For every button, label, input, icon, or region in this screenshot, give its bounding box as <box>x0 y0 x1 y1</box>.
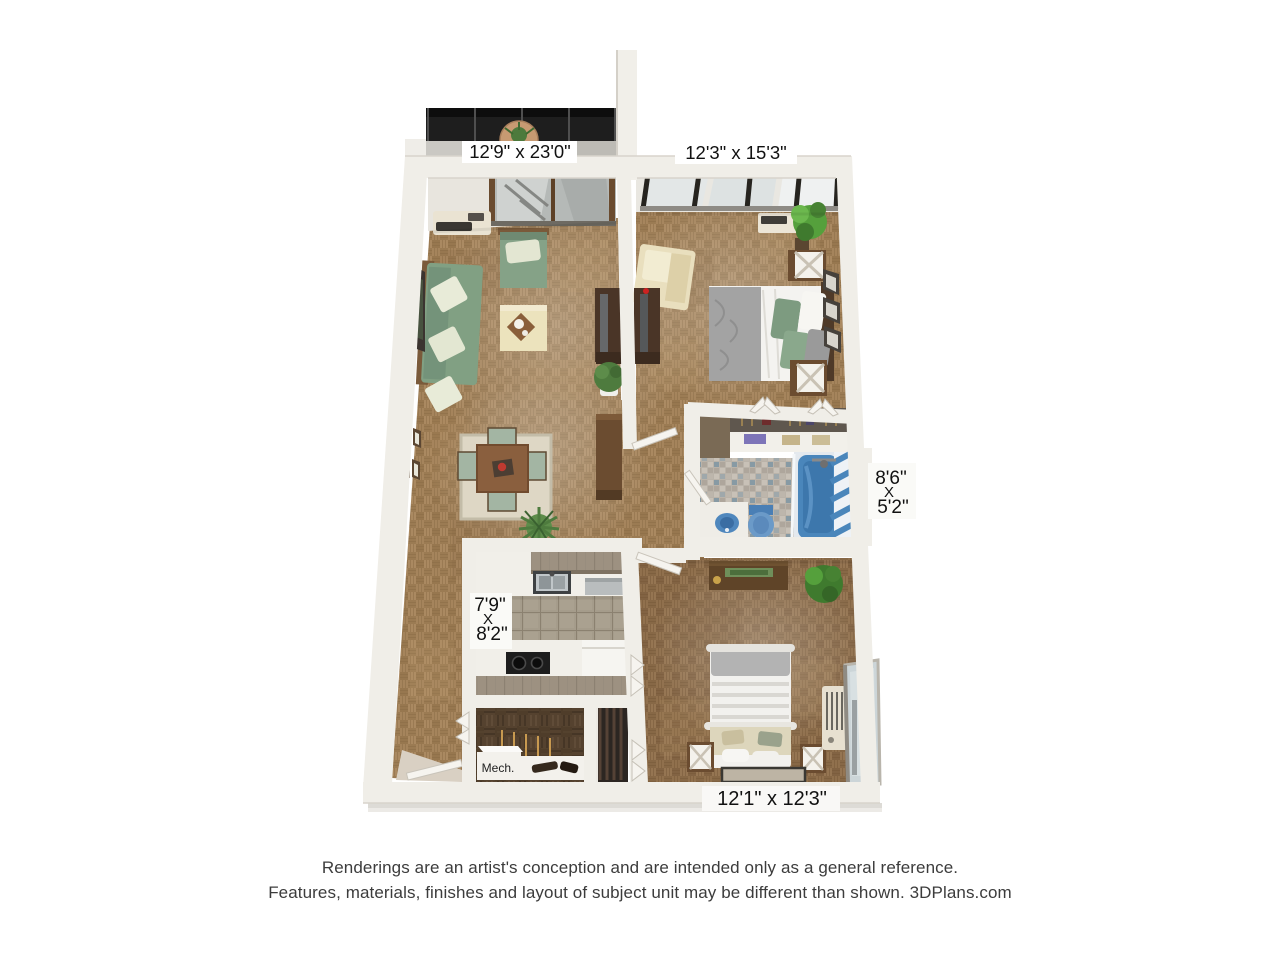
svg-text:5'2": 5'2" <box>877 497 909 518</box>
svg-text:12'3" x 15'3": 12'3" x 15'3" <box>685 142 786 163</box>
svg-text:12'1" x 12'3": 12'1" x 12'3" <box>717 788 827 810</box>
svg-text:8'2": 8'2" <box>476 624 508 645</box>
svg-text:12'9" x 23'0": 12'9" x 23'0" <box>469 141 570 162</box>
svg-text:Mech.: Mech. <box>482 761 515 775</box>
